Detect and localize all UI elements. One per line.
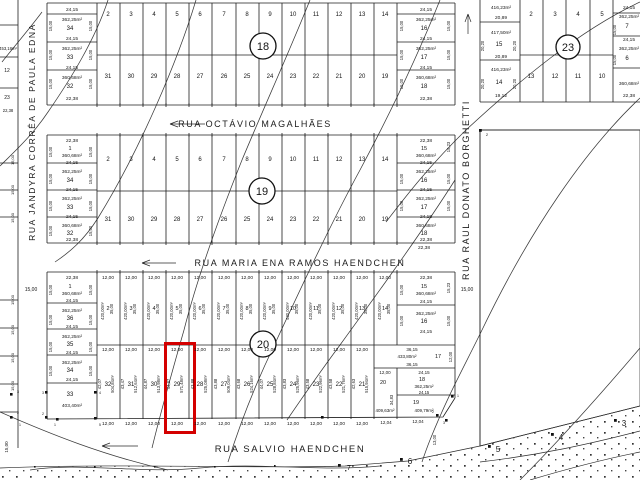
map-label: 18 — [419, 377, 425, 383]
map-label: 17 — [435, 354, 441, 360]
map-label: 15,00 — [4, 441, 9, 453]
map-label: 362,25m² — [416, 169, 437, 175]
map-label: 35,00 — [340, 303, 345, 314]
map-label: 360,68m² — [62, 223, 83, 229]
map-label: 420,00m² — [354, 302, 359, 320]
map-label: 22,38 — [3, 108, 14, 113]
map-label: 35,00 — [271, 303, 276, 314]
map-label: 15,00 — [10, 352, 15, 363]
map-label: 12,00 — [241, 421, 253, 427]
map-label: 362,25m² — [619, 14, 640, 20]
map-label: 13,00 — [432, 434, 437, 445]
survey-markers — [10, 129, 617, 468]
map-label: 12,00 — [241, 275, 253, 281]
map-label: 362,25m² — [414, 384, 434, 389]
north-arrow-icon — [465, 14, 471, 34]
map-label: 8 — [245, 157, 249, 163]
map-label: 34 — [67, 178, 74, 184]
map-label: 14 — [496, 80, 503, 86]
survey-marker — [436, 414, 439, 417]
map-label: 15,00 — [612, 24, 617, 35]
map-label: 26 — [221, 74, 228, 80]
map-label: 43,88 — [213, 378, 218, 389]
map-label: 42,07 — [97, 378, 102, 389]
map-label: 24,15 — [623, 37, 635, 43]
map-label: 20,20 — [512, 78, 517, 89]
map-label: 33 — [67, 205, 74, 211]
map-label: 5 — [600, 12, 604, 18]
map-label: 12,00 — [218, 347, 230, 353]
map-label: 420,00m² — [377, 302, 382, 320]
map-label: 12,00 — [264, 421, 276, 427]
map-label: 420,00m² — [262, 302, 267, 320]
map-label: 35 — [67, 342, 74, 348]
map-label: 6 — [198, 157, 202, 163]
lot-labels-layer: 24,15362,25m²3424,15362,25m²3324,15360,6… — [0, 5, 640, 472]
map-label: 7 — [222, 157, 226, 163]
map-label: 24,15 — [420, 214, 432, 220]
map-label: 23 — [290, 217, 297, 223]
map-label: 515,94m² — [364, 375, 369, 393]
survey-marker — [56, 418, 59, 421]
map-label: 2 — [17, 411, 19, 415]
map-label: 24,15 — [420, 299, 432, 305]
map-label: 420,00m² — [100, 302, 105, 320]
map-label: 43,47 — [120, 378, 125, 389]
map-label: 15,00 — [399, 284, 404, 295]
map-label: 416,23m² — [491, 67, 512, 73]
map-label: 420,00m² — [285, 302, 290, 320]
map-label: 19 — [382, 217, 389, 223]
map-label: 12,00 — [171, 347, 183, 353]
map-label: 15,00 — [48, 200, 53, 211]
map-label: 360,68m² — [62, 153, 83, 159]
map-label: 16 — [421, 319, 428, 325]
map-label: 12,00 — [356, 275, 368, 281]
survey-marker — [94, 466, 96, 468]
map-label: 36,15 — [406, 362, 418, 367]
survey-marker — [10, 393, 13, 396]
map-label: 15,00 — [48, 20, 53, 31]
map-label: 24,15 — [66, 377, 78, 383]
survey-marker — [94, 417, 97, 420]
map-label: 24,15 — [66, 36, 78, 42]
map-label: 17 — [421, 55, 428, 61]
map-label: 22,38 — [66, 96, 78, 102]
map-label: 33 — [67, 55, 74, 61]
map-label: 15,00 — [446, 20, 451, 31]
map-label: 36,15 — [406, 347, 418, 352]
map-label: 1 — [68, 284, 71, 290]
map-label: 30 — [128, 217, 135, 223]
map-label: 33 — [67, 392, 74, 398]
map-label: 420,00m² — [216, 302, 221, 320]
map-label: 24 — [267, 217, 274, 223]
map-label: 24,15 — [66, 7, 78, 13]
map-label: 24,15 — [66, 65, 78, 71]
map-label: 12,00 — [310, 347, 322, 353]
map-label: 12,00 — [102, 421, 114, 427]
map-label: 12,00 — [333, 275, 345, 281]
map-label: 2 — [432, 410, 434, 414]
map-label: 43,58 — [328, 378, 333, 389]
map-label: 21 — [336, 74, 343, 80]
street-name-octavio-magalhaes: RUA OCTÁVIO MAGALHÃES — [178, 119, 332, 129]
map-label: 12,00 — [287, 275, 299, 281]
survey-marker — [479, 129, 482, 132]
survey-marker — [614, 419, 617, 422]
west-arrow-icon — [102, 443, 138, 449]
map-label: 21 — [336, 217, 343, 223]
map-label: 360,68m² — [416, 223, 437, 229]
map-label: 360,68m² — [62, 291, 83, 297]
map-label: 504,84m² — [110, 375, 115, 393]
map-label: 27 — [197, 217, 204, 223]
street-name-raul-donato-borghetti: RUA RAUL DONATO BORGHETTI — [461, 100, 471, 280]
map-label: 15,00 — [399, 49, 404, 60]
map-label: 43,68 — [236, 378, 241, 389]
map-label: 29 — [151, 74, 158, 80]
map-label: 22,38 — [66, 138, 78, 144]
map-label: 362,25m² — [62, 169, 83, 175]
map-label: 12,00 — [218, 275, 230, 281]
map-label: 15,00 — [446, 78, 451, 89]
map-label: 524,16m² — [249, 375, 254, 393]
map-label: 12,00 — [194, 421, 206, 427]
map-label: 15,00 — [88, 225, 93, 236]
survey-marker — [94, 391, 97, 394]
map-label: 19 — [413, 400, 419, 406]
survey-marker — [338, 464, 341, 467]
map-label: 15,00 — [48, 49, 53, 60]
map-label: 12,00 — [264, 347, 276, 353]
map-label: 14 — [382, 12, 389, 18]
map-label: 2 — [486, 132, 489, 137]
map-label: 360,68m² — [619, 81, 640, 87]
map-label: 35,00 — [225, 303, 230, 314]
map-label: 31 — [105, 217, 112, 223]
map-label: 12,00 — [125, 421, 137, 427]
map-label: 15,00 — [88, 173, 93, 184]
map-label: 15,00 — [10, 212, 15, 223]
map-label: 11 — [313, 157, 320, 163]
map-label: 15,00 — [48, 173, 53, 184]
map-label: 403,40m² — [62, 403, 83, 409]
map-label: 44,87 — [143, 378, 148, 389]
map-label: 15,00 — [88, 365, 93, 376]
map-label: 10 — [290, 157, 297, 163]
survey-marker — [445, 419, 448, 422]
map-label: 20,20 — [480, 40, 485, 51]
map-label: 20 — [359, 74, 366, 80]
map-label: 22 — [313, 217, 320, 223]
map-label: 12,00 — [148, 275, 160, 281]
map-label: 15,00 — [48, 341, 53, 352]
map-label: 1 — [457, 394, 459, 398]
map-label: 19 — [382, 74, 389, 80]
map-label: 43,88 — [190, 378, 195, 389]
map-label: 24,15 — [420, 36, 432, 42]
map-label: 12 — [4, 68, 10, 74]
map-label: 18 — [421, 84, 428, 90]
map-label: 15,00 — [10, 154, 15, 165]
map-label: 15,00 — [10, 184, 15, 195]
map-label: 27 — [197, 74, 204, 80]
map-label: 24,15 — [419, 390, 430, 395]
street-name-salvio-haendchen: RUA SALVIO HAENDCHEN — [215, 444, 366, 455]
map-label: 12,00 — [333, 347, 345, 353]
map-label: 1 — [54, 423, 56, 427]
map-label: 16 — [421, 26, 428, 32]
map-label: 8 — [245, 12, 249, 18]
map-label: 5 — [175, 157, 179, 163]
map-label: 15,00 — [446, 200, 451, 211]
map-label: 513,98m² — [156, 375, 161, 393]
map-label: 25 — [244, 217, 251, 223]
map-label: 4 — [576, 12, 580, 18]
map-label: 12,00 — [148, 421, 160, 427]
map-label: 4 — [559, 433, 564, 442]
map-label: 12,00 — [218, 421, 230, 427]
map-label: 9 — [268, 157, 272, 163]
map-label: 12,00 — [102, 347, 114, 353]
map-label: 360,68m² — [416, 75, 437, 81]
map-label: 2 — [106, 12, 110, 18]
block-18 — [47, 3, 455, 105]
map-label: 12,00 — [379, 370, 391, 375]
map-label: 15,00 — [48, 284, 53, 295]
survey-marker — [45, 391, 48, 394]
map-label: 35,00 — [294, 303, 299, 314]
map-label: 36 — [67, 316, 74, 322]
survey-marker — [274, 465, 276, 467]
map-label: 24,15 — [623, 5, 635, 11]
map-label: 13 — [359, 157, 366, 163]
map-label: 12,00 — [102, 275, 114, 281]
map-label: 44,07 — [259, 378, 264, 389]
map-label: 9 — [268, 12, 272, 18]
survey-marker — [34, 466, 36, 468]
map-label: 15,00 — [88, 284, 93, 295]
survey-marker — [154, 466, 156, 468]
map-label: 12,00 — [448, 351, 453, 362]
map-label: 18 — [421, 231, 428, 237]
map-label: 22,38 — [66, 275, 78, 281]
map-label: 362,25m² — [416, 196, 437, 202]
map-label: 23 — [290, 74, 297, 80]
map-label: 2 — [529, 12, 533, 18]
map-label: 12,04 — [412, 419, 424, 424]
map-label: 22,38 — [420, 96, 432, 102]
map-label: 12,00 — [356, 421, 368, 427]
map-label: 24 — [267, 74, 274, 80]
map-label: 12,00 — [171, 421, 183, 427]
map-label: 20,89 — [495, 15, 507, 21]
map-label: 28 — [174, 217, 181, 223]
map-label: 417,50m² — [491, 30, 512, 36]
map-label: 3 — [17, 390, 19, 394]
survey-marker — [488, 445, 491, 448]
map-label: 15,00 — [10, 294, 15, 305]
map-label: 2 — [106, 157, 110, 163]
map-label: 420,00m² — [239, 302, 244, 320]
map-label: 1 — [19, 423, 21, 427]
map-label: 43,58 — [305, 378, 310, 389]
map-label: 22 — [313, 74, 320, 80]
map-label: 420,00m² — [308, 302, 313, 320]
map-label: 12 — [336, 12, 343, 18]
map-label: 15,00 — [399, 20, 404, 31]
map-label: 32 — [67, 84, 74, 90]
map-label: 35,00 — [363, 303, 368, 314]
map-label: 25 — [244, 74, 251, 80]
map-label: 420,00m² — [169, 302, 174, 320]
map-label: 362,25m² — [416, 311, 437, 317]
map-label: 15,00 — [48, 314, 53, 325]
map-label: 10 — [290, 12, 297, 18]
map-label: 22,38 — [420, 138, 432, 144]
cadastral-map-sheet: 18 19 20 23 RUA OCTÁVIO MAGALHÃES RUA MA… — [0, 0, 640, 480]
map-label: 24,15 — [420, 187, 432, 193]
map-label: 20 — [359, 217, 366, 223]
survey-marker — [45, 416, 48, 419]
map-label: 453,18m² — [0, 46, 17, 51]
street-name-jandyra-correa-de-paula-edna: RUA JANDYRA CORRÊA DE PAULA EDNA — [27, 23, 37, 241]
map-label: 42,63 — [351, 378, 356, 389]
map-label: 7 — [222, 12, 226, 18]
map-label: 34 — [67, 368, 74, 374]
map-label: 360,68m² — [62, 75, 83, 81]
map-label: 20,20 — [512, 40, 517, 51]
map-label: 15,00 — [48, 365, 53, 376]
map-label: 30 — [128, 74, 135, 80]
map-label: 12,00 — [356, 347, 368, 353]
map-label: 22,38 — [420, 237, 432, 243]
survey-marker — [451, 395, 454, 398]
map-label: 15,00 — [88, 49, 93, 60]
map-label: 5 — [496, 445, 501, 454]
map-label: 12,00 — [125, 347, 137, 353]
map-label: 7 — [347, 465, 351, 472]
map-label: 20 — [380, 380, 386, 386]
map-label: 15,00 — [48, 78, 53, 89]
map-label: 12,00 — [287, 347, 299, 353]
map-label: 12,00 — [264, 275, 276, 281]
map-label: 35,00 — [109, 303, 114, 314]
map-label: 26 — [221, 217, 228, 223]
map-label: 22,38 — [623, 93, 635, 99]
map-label: 362,25m² — [62, 196, 83, 202]
map-label: 7 — [625, 24, 629, 30]
map-label: 15,00 — [88, 78, 93, 89]
map-label: 360,68m² — [416, 153, 437, 159]
map-label: 12,00 — [125, 275, 137, 281]
survey-marker — [400, 458, 403, 461]
map-label: 362,25m² — [62, 46, 83, 52]
map-label: 24,15 — [66, 160, 78, 166]
map-label: 22,38 — [66, 237, 78, 243]
map-label: 362,25m² — [62, 308, 83, 314]
map-label: 12,04 — [380, 420, 392, 425]
map-label: 12,00 — [241, 347, 253, 353]
map-label: 28 — [174, 74, 181, 80]
map-label: 12,00 — [171, 275, 183, 281]
map-label: 5 — [175, 12, 179, 18]
map-label: 35,00 — [178, 303, 183, 314]
map-label: 34,83 — [389, 394, 394, 405]
map-label: 12,00 — [310, 421, 322, 427]
map-label: 24,15 — [66, 187, 78, 193]
survey-marker — [321, 416, 324, 419]
block-18-number: 18 — [257, 41, 269, 53]
map-label: 362,25m² — [416, 17, 437, 23]
map-label: 35,00 — [155, 303, 160, 314]
block-23-number: 23 — [562, 42, 574, 54]
map-label: 15,00 — [48, 225, 53, 236]
map-label: 12 — [552, 74, 559, 80]
map-label: 5 — [99, 423, 101, 427]
map-label: 10 — [599, 74, 606, 80]
map-label: 362,25m² — [619, 46, 640, 52]
map-label: 29 — [151, 217, 158, 223]
map-canvas: 18 19 20 23 RUA OCTÁVIO MAGALHÃES RUA MA… — [0, 0, 640, 480]
map-label: 20,89 — [495, 54, 507, 60]
map-label: 24,15 — [420, 7, 432, 13]
map-label: 3 — [622, 419, 627, 428]
map-label: 362,25m² — [62, 17, 83, 23]
map-label: 12,00 — [148, 347, 160, 353]
map-label: 15,00 — [10, 380, 15, 391]
map-label: 15,00 — [399, 173, 404, 184]
map-label: 3 — [42, 391, 44, 395]
map-label: 31 — [105, 74, 112, 80]
map-label: 24,15 — [66, 214, 78, 220]
map-label: 35,00 — [201, 303, 206, 314]
map-label: 35,00 — [132, 303, 137, 314]
west-arrow-icon — [142, 260, 176, 266]
map-label: 35,00 — [317, 303, 322, 314]
map-label: 15,00 — [48, 146, 53, 157]
map-label: 12,00 — [194, 275, 206, 281]
map-label: 360,68m² — [416, 291, 437, 297]
map-label: 3 — [443, 421, 445, 425]
map-label: 420,00m² — [331, 302, 336, 320]
map-label: 15,00 — [25, 287, 38, 293]
map-label: 525,96m² — [295, 375, 300, 393]
map-label: 23 — [4, 95, 10, 101]
map-label: 521,76m² — [341, 375, 346, 393]
block-19-number: 19 — [256, 186, 268, 198]
map-label: 15 — [496, 42, 503, 48]
survey-marker — [214, 466, 216, 468]
map-label: 525,08m² — [203, 375, 208, 393]
map-label: 15,23 — [446, 141, 451, 152]
map-label: 17 — [421, 205, 428, 211]
map-label: 420,00m² — [123, 302, 128, 320]
map-label: 15,00 — [399, 78, 404, 89]
map-label: 15,00 — [612, 54, 617, 65]
map-label: 16 — [421, 178, 428, 184]
map-label: 32 — [67, 231, 74, 237]
map-label: 4 — [152, 157, 156, 163]
map-label: 24,15 — [420, 329, 432, 335]
street-name-maria-ena-ramos-haendchen: RUA MARIA ENA RAMOS HAENDCHEN — [195, 258, 406, 268]
map-label: 3 — [129, 12, 133, 18]
map-label: 35,00 — [248, 303, 253, 314]
map-label: 528,84m² — [272, 375, 277, 393]
map-label: 20,20 — [480, 78, 485, 89]
survey-marker — [551, 433, 554, 436]
